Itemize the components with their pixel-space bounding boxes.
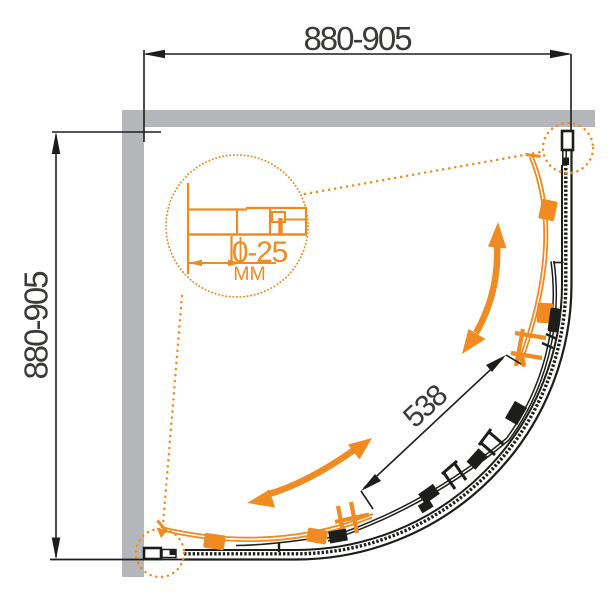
svg-text:MM: MM [233, 263, 266, 285]
svg-text:880-905: 880-905 [303, 20, 411, 57]
svg-text:880-905: 880-905 [18, 272, 55, 380]
